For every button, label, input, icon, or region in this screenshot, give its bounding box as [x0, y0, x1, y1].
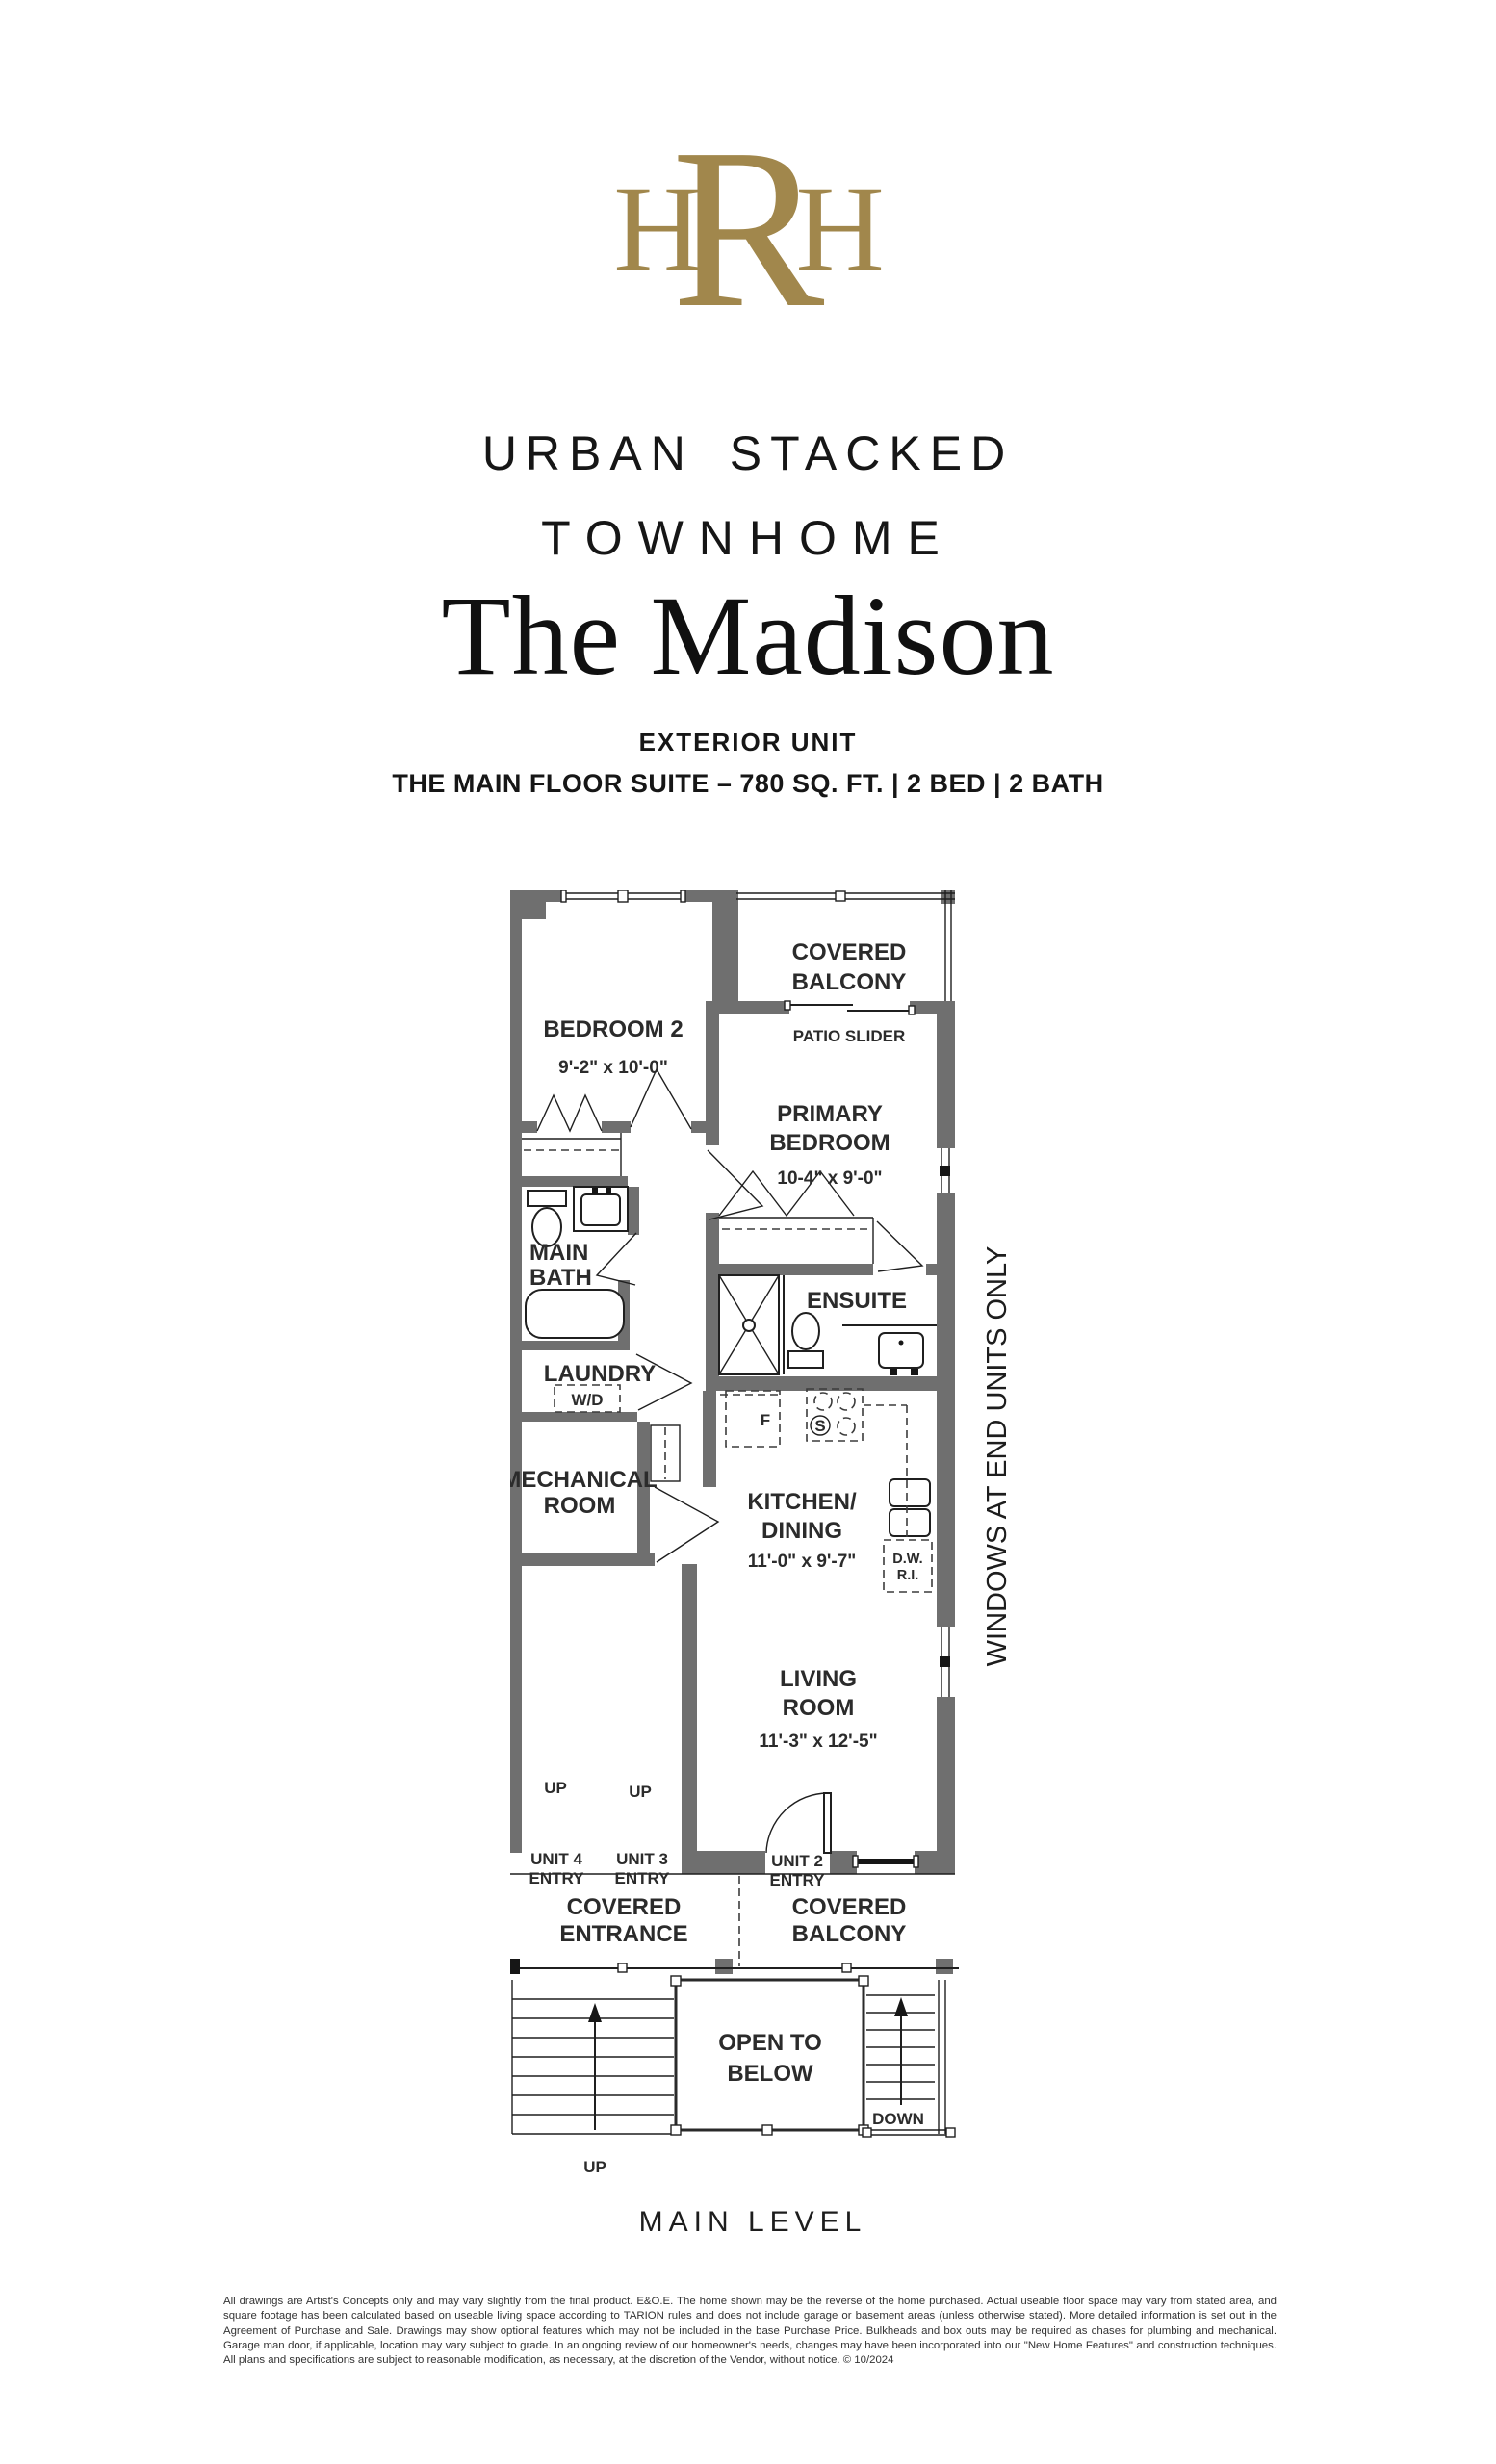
room-dims-kitchen: 11'-0" x 9'-7" — [748, 1552, 857, 1572]
level-caption: MAIN LEVEL — [512, 2206, 993, 2239]
up-hall-label-1: UP — [544, 1779, 567, 1797]
dw-ri-label-1: D.W. — [892, 1552, 922, 1567]
room-label-ensuite: ENSUITE — [807, 1288, 907, 1314]
down-label: DOWN — [872, 2110, 924, 2128]
room-label-kitchen-2: DINING — [761, 1518, 842, 1544]
room-label-main-bath-1: MAIN — [529, 1240, 588, 1266]
walls-layer — [510, 890, 955, 1974]
flyer-page: H R H URBAN STACKED TOWNHOME The Madison… — [0, 0, 1496, 2464]
up-hall-label-2: UP — [629, 1783, 652, 1801]
room-label-primary-2: BEDROOM — [769, 1130, 890, 1156]
room-label-laundry: LAUNDRY — [544, 1361, 656, 1387]
room-dims-bedroom2: 9'-2" x 10'-0" — [558, 1058, 668, 1078]
floor-plan: BEDROOM 2 9'-2" x 10'-0" COVERED BALCONY… — [510, 890, 974, 2185]
unit4-entry-label-1: UNIT 4 — [530, 1850, 582, 1868]
closet-primary — [719, 1218, 873, 1264]
room-label-entrance-1: COVERED — [567, 1894, 682, 1920]
laundry-wd-label: W/D — [571, 1391, 603, 1409]
dw-ri-label-2: R.I. — [897, 1568, 919, 1583]
ensuite-sink-icon — [842, 1325, 937, 1375]
legal-disclaimer: All drawings are Artist's Concepts only … — [223, 2295, 1277, 2368]
room-label-living-1: LIVING — [780, 1666, 857, 1692]
up-stairs-label: UP — [583, 2158, 606, 2176]
room-label-bedroom2: BEDROOM 2 — [543, 1016, 683, 1042]
ensuite-toilet-icon — [788, 1313, 823, 1368]
suite-spec-line: THE MAIN FLOOR SUITE – 780 SQ. FT. | 2 B… — [0, 769, 1496, 799]
room-label-entrance-2: ENTRANCE — [559, 1921, 687, 1947]
stove-label: S — [814, 1417, 825, 1435]
unit4-entry-label-2: ENTRY — [529, 1869, 585, 1887]
patio-slider-label: PATIO SLIDER — [793, 1027, 906, 1045]
toilet-icon — [528, 1191, 566, 1246]
unit3-entry-label-2: ENTRY — [615, 1869, 671, 1887]
collection-name-line2: TOWNHOME — [0, 510, 1496, 566]
room-label-balcony-bottom-2: BALCONY — [792, 1921, 907, 1947]
unit2-entry-label-1: UNIT 2 — [771, 1852, 823, 1870]
windows-and-rails-layer — [510, 890, 959, 1974]
collection-name-line1: URBAN STACKED — [0, 425, 1496, 481]
bathtub-icon — [526, 1290, 624, 1338]
open-to-below-label-1: OPEN TO — [718, 2030, 822, 2056]
room-label-balcony-top-2: BALCONY — [792, 969, 907, 995]
kitchen-sink-icon — [890, 1479, 930, 1536]
room-label-mechanical-1: MECHANICAL — [510, 1467, 658, 1493]
bathroom-sink-icon — [574, 1187, 628, 1231]
unit-type-subtitle: EXTERIOR UNIT — [0, 728, 1496, 757]
closet-bedroom2 — [522, 1133, 621, 1176]
monogram-r-icon: R — [672, 115, 825, 344]
room-label-mechanical-2: ROOM — [544, 1493, 616, 1519]
unit2-entry-label-2: ENTRY — [770, 1871, 826, 1889]
windows-end-units-note: WINDOWS AT END UNITS ONLY — [982, 1230, 1022, 1682]
room-label-main-bath-2: BATH — [529, 1265, 592, 1291]
fridge-label: F — [761, 1411, 770, 1429]
room-dims-living: 11'-3" x 12'-5" — [759, 1732, 877, 1752]
room-label-balcony-bottom-1: COVERED — [792, 1894, 907, 1920]
room-dims-primary: 10-4" x 9'-0" — [777, 1168, 882, 1189]
room-label-kitchen-1: KITCHEN/ — [747, 1489, 857, 1515]
room-label-living-2: ROOM — [783, 1695, 855, 1721]
page-title: The Madison — [0, 574, 1496, 699]
unit3-entry-label-1: UNIT 3 — [616, 1850, 668, 1868]
shower-icon — [719, 1275, 784, 1374]
room-label-primary-1: PRIMARY — [777, 1101, 883, 1127]
open-to-below-label-2: BELOW — [727, 2061, 813, 2087]
room-label-balcony-top-1: COVERED — [792, 939, 907, 965]
brand-logo: H R H — [0, 123, 1496, 335]
